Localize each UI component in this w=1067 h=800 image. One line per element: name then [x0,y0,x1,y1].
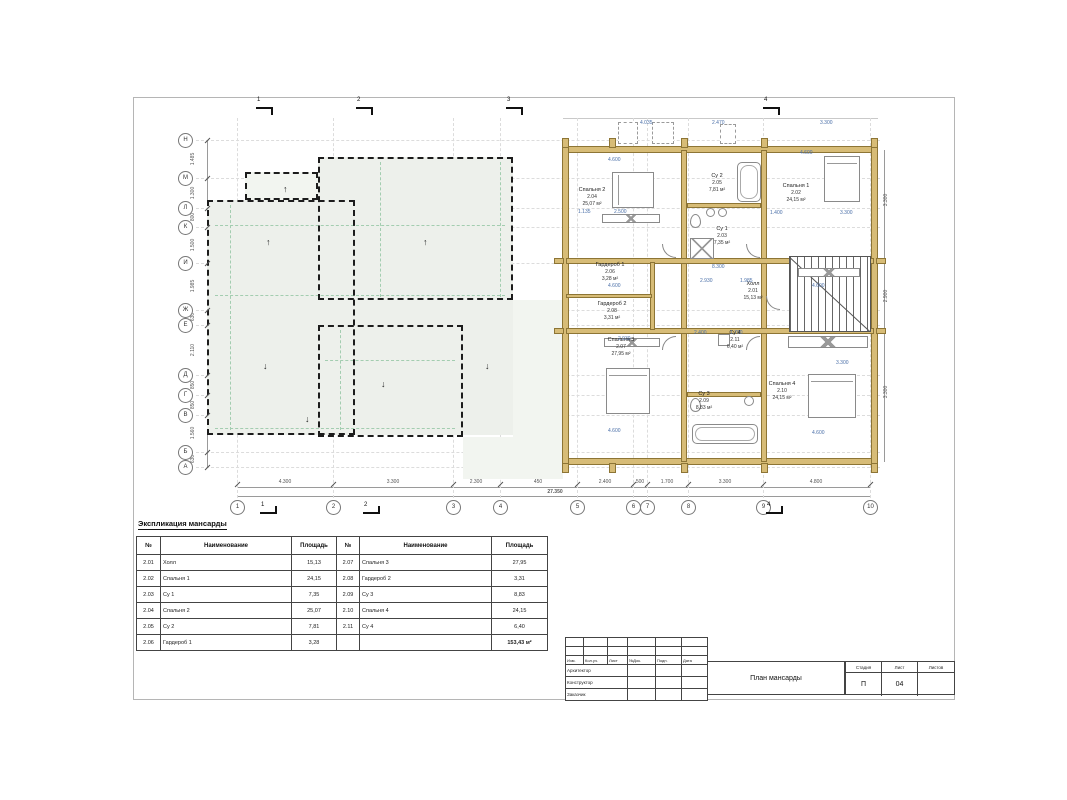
sheets-value [918,673,954,696]
roof-outline [318,325,463,437]
sink-symbol [718,208,727,217]
table-row: 2.03Су 17,35 [137,587,337,603]
log-crossing [876,328,886,334]
room-number-cell: 2.06 [137,635,161,651]
section-mark-line [763,107,779,109]
axis-bubble-left: Д [178,368,193,383]
log-crossing [871,138,878,148]
log-crossing [554,258,564,264]
roof-vent [720,124,736,144]
dim-segment-label: 1.985 [190,273,196,299]
room-area-cell: 24,15 [492,603,548,619]
room-label: Гардероб 22.083,31 м² [598,301,627,321]
explication-table-left: №НаименованиеПлощадь2.01Холл15,132.02Спа… [136,536,337,651]
explication-header: № [337,537,360,555]
table-row: 2.10Спальня 424,15 [337,603,548,619]
section-mark-number: 1 [257,97,260,103]
axis-bubble-left: Б [178,445,193,460]
dimension-line-top [563,118,878,119]
room-name-cell: Спальня 2 [161,603,292,619]
dim-label-blue: 4.600 [812,283,825,289]
total-area-cell: 153,43 м² [492,635,548,651]
section-mark-line [260,512,276,514]
dim-segment-label: 1.500 [190,232,196,258]
wardrobe-symbol [788,336,868,348]
axis-bubble-bottom: 7 [640,500,655,515]
room-area-cell: 6,40 [492,619,548,635]
explication-table-right: №НаименованиеПлощадь2.07Спальня 327,952.… [336,536,548,651]
log-crossing [562,463,569,473]
section-mark: 1 [256,98,276,112]
revision-header-cell: №Док. [628,656,656,665]
room-label: Спальня 42.1024,15 м² [769,381,796,401]
room-number-cell: 2.10 [337,603,360,619]
grid-line [196,140,880,141]
room-name-cell: Холл [161,555,292,571]
wall-exterior-left [562,146,569,465]
roof-outline [245,172,318,200]
explication-header: Площадь [492,537,548,555]
revision-cell [656,638,682,647]
log-crossing [871,463,878,473]
revision-cell [628,638,656,647]
room-name: Спальня 4 [769,381,796,388]
dim-segment-label: 450 [520,479,556,485]
dim-segment-label: 3.300 [707,479,743,485]
room-label: Гардероб 12.063,28 м² [596,262,625,282]
section-mark-line [271,107,273,115]
room-label: Спальня 22.0425,07 м² [579,187,606,207]
table-row: 2.02Спальня 124,15 [137,571,337,587]
section-mark-line [371,107,373,115]
room-name: Су 1 [714,226,730,233]
room-name-cell: Су 3 [360,587,492,603]
table-row: 2.09Су 38,83 [337,587,548,603]
section-mark-number: 3 [507,97,510,103]
dim-segment-label: 3.300 [883,379,889,405]
role-label-cell: Конструктор [566,677,628,689]
section-mark-number: 4 [767,502,770,508]
log-crossing [876,258,886,264]
axis-bubble-left: Г [178,388,193,403]
explication-title: Экспликация мансарды [138,519,227,530]
axis-bubble-left: М [178,171,193,186]
room-label: Су 22.057,81 м² [709,173,725,193]
dim-label-blue: 3.300 [836,360,849,366]
revision-cell [566,638,584,647]
section-mark: 2 [356,98,376,112]
room-area: 24,15 м² [783,197,810,204]
room-name: Гардероб 2 [598,301,627,308]
room-area: 27,95 м² [608,351,635,358]
axis-bubble-bottom: 4 [493,500,508,515]
axis-bubble-left: В [178,408,193,423]
room-area-cell: 24,15 [292,571,337,587]
log-crossing [609,138,616,148]
table-row: 2.11Су 46,40 [337,619,548,635]
room-number-cell: 2.04 [137,603,161,619]
roof-slope-arrow: ↓ [263,362,268,371]
roof-outline [318,157,513,300]
section-mark-line [256,107,272,109]
room-name-cell: Су 4 [360,619,492,635]
dimension-line-bottom [237,487,870,488]
roof-area [463,437,563,479]
dim-segment-label: 3.300 [883,187,889,213]
room-area-cell: 3,31 [492,571,548,587]
room-area-cell: 8,83 [492,587,548,603]
dim-segment-label: 2.300 [458,479,494,485]
room-area: 15,13 м² [743,295,762,302]
explication-header: Площадь [292,537,337,555]
signature-cell [656,689,682,701]
log-crossing [609,463,616,473]
revision-header-cell: Лист [608,656,628,665]
room-name-cell: Гардероб 2 [360,571,492,587]
axis-bubble-bottom: 10 [863,500,878,515]
dim-label-blue: 3.300 [840,210,853,216]
titleblock-revision-table: Изм.Кол.уч.Лист№Док.Подп.ДатаАрхитекторК… [565,637,708,701]
table-row: 2.05Су 27,81 [137,619,337,635]
room-area-cell: 27,95 [492,555,548,571]
bed-symbol [808,374,856,418]
wall-interior [566,294,652,298]
section-mark-number: 2 [357,97,360,103]
room-area-cell: 7,81 [292,619,337,635]
revision-cell [584,647,608,656]
room-area: 3,28 м² [596,276,625,283]
dim-label-blue: 3.300 [820,120,833,126]
room-area-cell: 3,28 [292,635,337,651]
dim-segment-label: 1.300 [190,180,196,206]
role-label-cell: Заказчик [566,689,628,701]
grid-line [688,118,689,498]
room-name-cell: Спальня 1 [161,571,292,587]
room-area: 7,35 м² [714,240,730,247]
axis-bubble-left: И [178,256,193,271]
revision-cell [682,647,708,656]
log-crossing [761,138,768,148]
section-mark-line [378,506,380,514]
bed-symbol [612,172,654,208]
axis-bubble-bottom: 5 [570,500,585,515]
signature-cell [682,677,708,689]
revision-header-cell: Дата [682,656,708,665]
signature-cell [656,665,682,677]
signature-cell [682,665,708,677]
revision-cell [682,638,708,647]
axis-bubble-left: Е [178,318,193,333]
drawing-page: 12345678910НМЛКИЖЕДГВБА4.3003.3002.30045… [0,0,1067,800]
dim-label-blue: 2.930 [700,278,713,284]
section-mark: 1 [260,503,280,517]
dim-label-blue: 4.600 [812,430,825,436]
room-number-cell: 2.01 [137,555,161,571]
role-label-cell: Архитектор [566,665,628,677]
room-name-cell: Гардероб 1 [161,635,292,651]
room-name: Спальня 2 [579,187,606,194]
dim-label-blue: 1.985 [740,278,753,284]
revision-header-cell: Кол.уч. [584,656,608,665]
axis-bubble-left: Ж [178,303,193,318]
roof-vent [618,122,638,144]
wall-interior [761,150,767,462]
bathtub-symbol [692,424,758,444]
explication-header: Наименование [360,537,492,555]
room-number-cell: 2.07 [337,555,360,571]
axis-bubble-left: А [178,460,193,475]
roof-slope-arrow: ↑ [423,238,428,247]
dim-segment-label: 3.300 [375,479,411,485]
section-mark: 2 [363,503,383,517]
section-mark: 4 [766,503,786,517]
section-mark-number: 2 [364,502,367,508]
stage-value: П [846,673,882,696]
dim-label-blue: 4.600 [608,157,621,163]
signature-cell [682,689,708,701]
room-number-cell: 2.08 [337,571,360,587]
room-name: Су 2 [709,173,725,180]
axis-bubble-bottom: 2 [326,500,341,515]
dim-label-blue: 2.930 [618,336,631,342]
room-name-cell: Су 1 [161,587,292,603]
room-name: Су 3 [696,391,712,398]
room-label: Спальня 12.0224,15 м² [783,183,810,203]
dim-segment-label: 4.800 [798,479,834,485]
dim-segment-label: 1.700 [649,479,685,485]
room-area: 7,81 м² [709,187,725,194]
axis-bubble-left: Л [178,201,193,216]
shower-symbol [690,238,714,259]
dim-label-blue: 2.500 [614,209,627,215]
section-mark-line [766,512,782,514]
roof-slope-arrow: ↓ [485,362,490,371]
section-mark-line [781,506,783,514]
wall-interior [681,150,687,462]
signature-cell [628,665,656,677]
titleblock-drawing-title: План мансарды [707,661,845,695]
room-area: 6,40 м² [727,344,743,351]
room-area-cell: 15,13 [292,555,337,571]
room-area: 8,83 м² [696,405,712,412]
sheet-label: Лист [882,662,918,673]
room-area: 3,31 м² [598,315,627,322]
dim-label-blue: 4.035 [640,120,653,126]
room-area-cell: 7,35 [292,587,337,603]
signature-cell [656,677,682,689]
total-row: 153,43 м² [337,635,548,651]
room-area-cell: 25,07 [292,603,337,619]
wardrobe-symbol [798,268,860,277]
dim-label-blue: 4.600 [608,283,621,289]
bed-symbol [606,368,650,414]
room-name: Спальня 1 [783,183,810,190]
wall-exterior-right [871,146,878,465]
empty-cell [337,635,360,651]
axis-bubble-bottom: 1 [230,500,245,515]
sink-symbol [706,208,715,217]
sheets-label: Листов [918,662,954,673]
section-mark-number: 1 [261,502,264,508]
room-name-cell: Спальня 4 [360,603,492,619]
dim-segment-label: 1.560 [190,420,196,446]
section-mark-line [778,107,780,115]
axis-bubble-bottom: 6 [626,500,641,515]
stage-label: Стадия [846,662,882,673]
roof-vent [652,122,674,144]
dim-label-blue: 8.300 [712,264,725,270]
explication-header: № [137,537,161,555]
revision-cell [656,647,682,656]
signature-cell [628,689,656,701]
toilet-symbol [690,214,701,228]
log-crossing [681,463,688,473]
section-mark-line [506,107,522,109]
axis-bubble-bottom: 3 [446,500,461,515]
section-mark-line [356,107,372,109]
room-number-cell: 2.05 [137,619,161,635]
room-number-cell: 2.11 [337,619,360,635]
titleblock-stage-sheet: Стадия Лист Листов П 04 [845,661,955,695]
dim-label-blue: 4.600 [800,150,813,156]
section-mark: 3 [506,98,526,112]
revision-cell [566,647,584,656]
room-area: 24,15 м² [769,395,796,402]
section-mark-number: 4 [764,97,767,103]
sink-symbol [744,396,754,406]
explication-header: Наименование [161,537,292,555]
log-crossing [761,463,768,473]
dim-segment-label: 1.485 [190,146,196,172]
dim-label-blue: 1.400 [770,210,783,216]
roof-slope-arrow: ↓ [305,415,310,424]
dim-segment-label: 2.400 [587,479,623,485]
roof-slope-arrow: ↑ [283,185,288,194]
room-name-cell: Су 2 [161,619,292,635]
dim-total-label: 27.350 [525,489,585,495]
grid-line [577,118,578,498]
section-mark-line [521,107,523,115]
log-crossing [554,328,564,334]
axis-bubble-bottom: 8 [681,500,696,515]
dim-segment-label: 2.900 [883,283,889,309]
revision-cell [608,647,628,656]
revision-header-cell: Подп. [656,656,682,665]
dim-segment-label: 4.300 [267,479,303,485]
signature-cell [628,677,656,689]
room-name: Гардероб 1 [596,262,625,269]
section-mark: 4 [763,98,783,112]
room-number-cell: 2.02 [137,571,161,587]
dim-label-blue: 1.135 [578,209,591,215]
dim-label-blue: 2.400 [694,330,707,336]
table-row: 2.04Спальня 225,07 [137,603,337,619]
revision-cell [584,638,608,647]
dim-label-blue: 4.600 [608,428,621,434]
room-number-cell: 2.03 [137,587,161,603]
table-row: 2.06Гардероб 13,28 [137,635,337,651]
wall-interior [687,203,761,208]
table-row: 2.01Холл15,13 [137,555,337,571]
dim-label-blue: 1.700 [730,330,743,336]
dimension-line-bottom-total [237,496,870,497]
roof-slope-arrow: ↑ [266,238,271,247]
section-mark-line [275,506,277,514]
wardrobe-symbol [602,214,660,223]
revision-cell [608,638,628,647]
section-mark-line [363,512,379,514]
table-row: 2.08Гардероб 23,31 [337,571,548,587]
log-crossing [681,138,688,148]
table-row: 2.07Спальня 327,95 [337,555,548,571]
dim-label-blue: 2.470 [712,120,725,126]
dim-segment-label: 2.110 [190,337,196,363]
axis-bubble-left: Н [178,133,193,148]
sheet-value: 04 [882,673,918,696]
room-label: Су 32.098,83 м² [696,391,712,411]
bed-symbol [824,156,860,202]
log-crossing [562,138,569,148]
axis-bubble-left: К [178,220,193,235]
roof-slope-arrow: ↓ [381,380,386,389]
room-area: 25,07 м² [579,201,606,208]
empty-cell [360,635,492,651]
revision-header-cell: Изм. [566,656,584,665]
drawing-title-text: План мансарды [750,675,802,682]
bathtub-symbol [737,162,761,202]
revision-cell [628,647,656,656]
room-label: Су 12.037,35 м² [714,226,730,246]
room-number-cell: 2.09 [337,587,360,603]
room-name-cell: Спальня 3 [360,555,492,571]
